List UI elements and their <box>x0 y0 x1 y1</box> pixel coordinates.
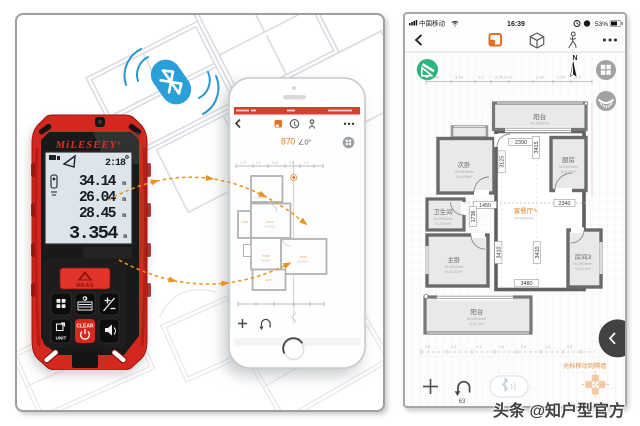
svg-text:厨房: 厨房 <box>562 155 575 164</box>
svg-text:1.1: 1.1 <box>545 345 550 349</box>
svg-text:3.354: 3.354 <box>69 223 118 244</box>
svg-text:M=2903mm: M=2903mm <box>444 265 463 269</box>
svg-text:中国移动: 中国移动 <box>419 19 446 28</box>
svg-text:阳台: 阳台 <box>470 307 483 316</box>
svg-text:阳台: 阳台 <box>533 112 546 121</box>
svg-text:2390: 2390 <box>515 140 527 146</box>
svg-text:1450: 1450 <box>479 203 491 209</box>
svg-text:S=5.25m²: S=5.25m² <box>561 170 577 174</box>
svg-text:MEAS: MEAS <box>76 283 94 289</box>
svg-text:S=8.38m²: S=8.38m² <box>456 175 472 179</box>
svg-text:主卧: 主卧 <box>448 255 462 264</box>
svg-text:1.9: 1.9 <box>478 75 484 80</box>
svg-text:M:2805m: M:2805m <box>255 196 266 200</box>
svg-text:34.14: 34.14 <box>79 174 117 190</box>
svg-text:1.27: 1.27 <box>240 161 247 165</box>
svg-text:UNIT: UNIT <box>56 336 67 341</box>
svg-text:16:39: 16:39 <box>507 21 525 28</box>
svg-text:3410: 3410 <box>496 247 502 259</box>
svg-text:0.9: 0.9 <box>567 345 572 349</box>
svg-text:2.1: 2.1 <box>476 345 481 349</box>
svg-text:m: m <box>122 180 126 187</box>
svg-text:S=11.3m²: S=11.3m² <box>469 322 485 326</box>
svg-text:2.39,3.13: 2.39,3.13 <box>495 75 512 80</box>
svg-text:S=11.41m²: S=11.41m² <box>445 270 463 274</box>
svg-text:M:2805m: M:2805m <box>265 225 276 229</box>
svg-text:2845: 2845 <box>300 255 307 259</box>
svg-text:m: m <box>122 196 126 203</box>
svg-text:S=3.94m²: S=3.94m² <box>435 222 451 226</box>
svg-text:M=2903mm: M=2903mm <box>530 122 549 126</box>
svg-text:2.6: 2.6 <box>256 161 261 165</box>
svg-text:M:2505m: M:2505m <box>298 260 309 264</box>
svg-text:1.3: 1.3 <box>304 161 309 165</box>
svg-text:2.34: 2.34 <box>536 75 545 80</box>
svg-text:2340: 2340 <box>559 201 571 207</box>
svg-text:1736: 1736 <box>471 211 477 223</box>
svg-text:S=5.11m²: S=5.11m² <box>575 267 591 271</box>
svg-text:3414: 3414 <box>267 220 274 224</box>
svg-text:M=2903mm: M=2903mm <box>559 165 578 169</box>
svg-text:∠0°: ∠0° <box>298 138 311 147</box>
svg-text:1.06: 1.06 <box>557 75 566 80</box>
svg-text:房间3: 房间3 <box>575 252 592 261</box>
svg-text:m: m <box>122 212 126 219</box>
svg-text:M=2903mm: M=2903mm <box>467 317 486 321</box>
svg-text:次卧: 次卧 <box>458 160 472 169</box>
svg-text:3354: 3354 <box>263 254 270 258</box>
svg-text:26.04: 26.04 <box>79 190 117 206</box>
svg-text:MiLESEEY®: MiLESEEY® <box>55 140 122 151</box>
svg-text:0.8: 0.8 <box>425 345 430 349</box>
svg-text:光标移动到隔墙: 光标移动到隔墙 <box>563 362 606 370</box>
svg-text:M=2903mm: M=2903mm <box>454 170 473 174</box>
svg-text:2.4: 2.4 <box>521 345 526 349</box>
svg-text:3415: 3415 <box>534 142 540 154</box>
svg-text:53%: 53% <box>595 21 608 28</box>
svg-text:CLEAR: CLEAR <box>76 324 94 330</box>
svg-text:28.45: 28.45 <box>79 206 116 222</box>
svg-text:3410: 3410 <box>535 247 541 259</box>
svg-text:M=2903mm: M=2903mm <box>514 217 533 221</box>
svg-text:3125: 3125 <box>500 156 506 168</box>
svg-text:2:18: 2:18 <box>105 158 126 169</box>
svg-text:卫生间: 卫生间 <box>433 207 453 216</box>
svg-text:M=2903mm: M=2903mm <box>433 217 452 221</box>
svg-text:1.6: 1.6 <box>499 345 504 349</box>
svg-text:2.4: 2.4 <box>575 75 581 80</box>
svg-text:3.41: 3.41 <box>272 161 279 165</box>
svg-text:1270: 1270 <box>266 278 273 282</box>
svg-text:N: N <box>573 55 578 62</box>
svg-text:3.18: 3.18 <box>455 75 464 80</box>
svg-text:2604: 2604 <box>257 191 264 195</box>
svg-text:M=2903mm: M=2903mm <box>573 262 592 266</box>
svg-text:870: 870 <box>281 137 295 147</box>
svg-text:1.2: 1.2 <box>451 345 456 349</box>
svg-text:1.44: 1.44 <box>431 75 440 80</box>
svg-text:63: 63 <box>459 399 466 405</box>
svg-text:2.8: 2.8 <box>289 161 294 165</box>
svg-text:1415: 1415 <box>241 220 248 224</box>
svg-text:3480: 3480 <box>521 281 533 287</box>
svg-text:M:250m: M:250m <box>261 259 270 263</box>
svg-text:m: m <box>123 233 127 240</box>
